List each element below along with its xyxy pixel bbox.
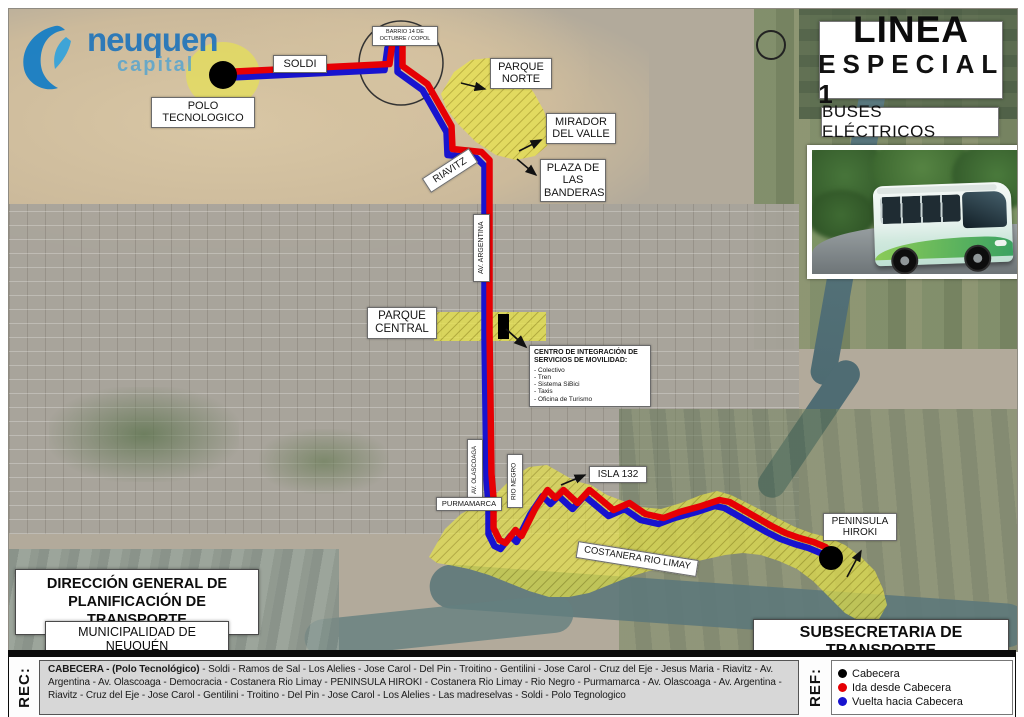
label-barrio-circle: BARRIO 14 DE OCTUBRE / COPOL — [372, 26, 438, 46]
satellite-map: SOLDI POLO TECNOLOGICO BARRIO 14 DE OCTU… — [8, 8, 1018, 652]
black-dot-icon — [838, 669, 847, 678]
legend-item-vuelta: Vuelta hacia Cabecera — [838, 696, 1006, 708]
title-line2: ESPECIAL 1 — [818, 50, 1004, 110]
rec-label: REC: — [9, 658, 39, 717]
bus-side-windows — [880, 194, 961, 224]
legend: Cabecera Ida desde Cabecera Vuelta hacia… — [831, 660, 1013, 715]
bus-body — [873, 182, 1014, 267]
peninsula-hiroki-marker — [819, 546, 843, 570]
label-av-argentina: AV. ARGENTINA — [473, 214, 490, 282]
logo-tagline: capital — [117, 54, 218, 77]
label-parque-central: PARQUE CENTRAL — [367, 307, 437, 339]
blue-dot-icon — [838, 697, 847, 706]
ref-label-text: REF: — [807, 668, 824, 707]
logo-name: neuquen — [87, 23, 218, 56]
label-purmamarca: PURMAMARCA — [436, 497, 502, 511]
legend-label: Ida desde Cabecera — [852, 682, 951, 694]
plaza-arrow — [517, 159, 536, 175]
electric-bus-photo — [807, 145, 1018, 279]
legend-label: Cabecera — [852, 668, 900, 680]
legend-item-cabecera: Cabecera — [838, 668, 1006, 680]
label-soldi: SOLDI — [273, 55, 327, 73]
title-line1: LINEA — [853, 11, 969, 48]
bus-headlight — [995, 240, 1007, 246]
label-isla-132: ISLA 132 — [589, 466, 647, 483]
legend-item-ida: Ida desde Cabecera — [838, 682, 1006, 694]
legend-label: Vuelta hacia Cabecera — [852, 696, 963, 708]
title-box: LINEA ESPECIAL 1 — [819, 21, 1003, 99]
label-rio-negro: RIO NEGRO — [507, 454, 523, 508]
bus-windshield — [962, 191, 1007, 229]
cisem-item: - Tren — [534, 374, 646, 381]
municipalidad-box: MUNICIPALIDAD DE NEUQUÉN — [45, 621, 229, 652]
cisem-marker — [498, 314, 509, 339]
cisem-item: - Sistema SiBici — [534, 381, 646, 388]
map-circle-marker — [757, 31, 785, 59]
label-mirador-del-valle: MIRADOR DEL VALLE — [546, 113, 616, 144]
cisem-item: - Oficina de Turismo — [534, 396, 646, 403]
subtitle-box: BUSES ELÉCTRICOS — [821, 107, 999, 137]
logo-text: neuquen capital — [87, 23, 218, 77]
cisem-title: CENTRO DE INTEGRACIÓN DE SERVICIOS DE MO… — [534, 349, 646, 365]
neuquen-capital-logo: neuquen capital — [19, 23, 219, 107]
label-plaza-banderas: PLAZA DE LAS BANDERAS — [540, 159, 606, 202]
label-av-olascoaga: AV. OLASCOAGA — [467, 439, 483, 501]
cisem-box: CENTRO DE INTEGRACIÓN DE SERVICIOS DE MO… — [529, 345, 651, 407]
subsecretaria-box: SUBSECRETARIA DE TRANSPORTE — [753, 619, 1009, 652]
label-parque-norte: PARQUE NORTE — [490, 58, 552, 89]
neuquen-wave-icon — [19, 23, 81, 93]
linea-especial-1-poster: SOLDI POLO TECNOLOGICO BARRIO 14 DE OCTU… — [0, 0, 1024, 717]
red-dot-icon — [838, 683, 847, 692]
bottom-bar: REC: CABECERA - (Polo Tecnológico) - Sol… — [8, 650, 1016, 717]
ref-label: REF: — [799, 658, 831, 717]
cisem-item: - Colectivo — [534, 367, 646, 374]
cisem-item: - Taxis — [534, 388, 646, 395]
rec-label-text: REC: — [16, 667, 33, 708]
rec-bold-text: CABECERA - (Polo Tecnológico) — [48, 664, 200, 675]
rec-route-description: CABECERA - (Polo Tecnológico) - Soldi - … — [39, 660, 799, 715]
label-peninsula-hiroki: PENINSULA HIROKI — [823, 513, 897, 541]
